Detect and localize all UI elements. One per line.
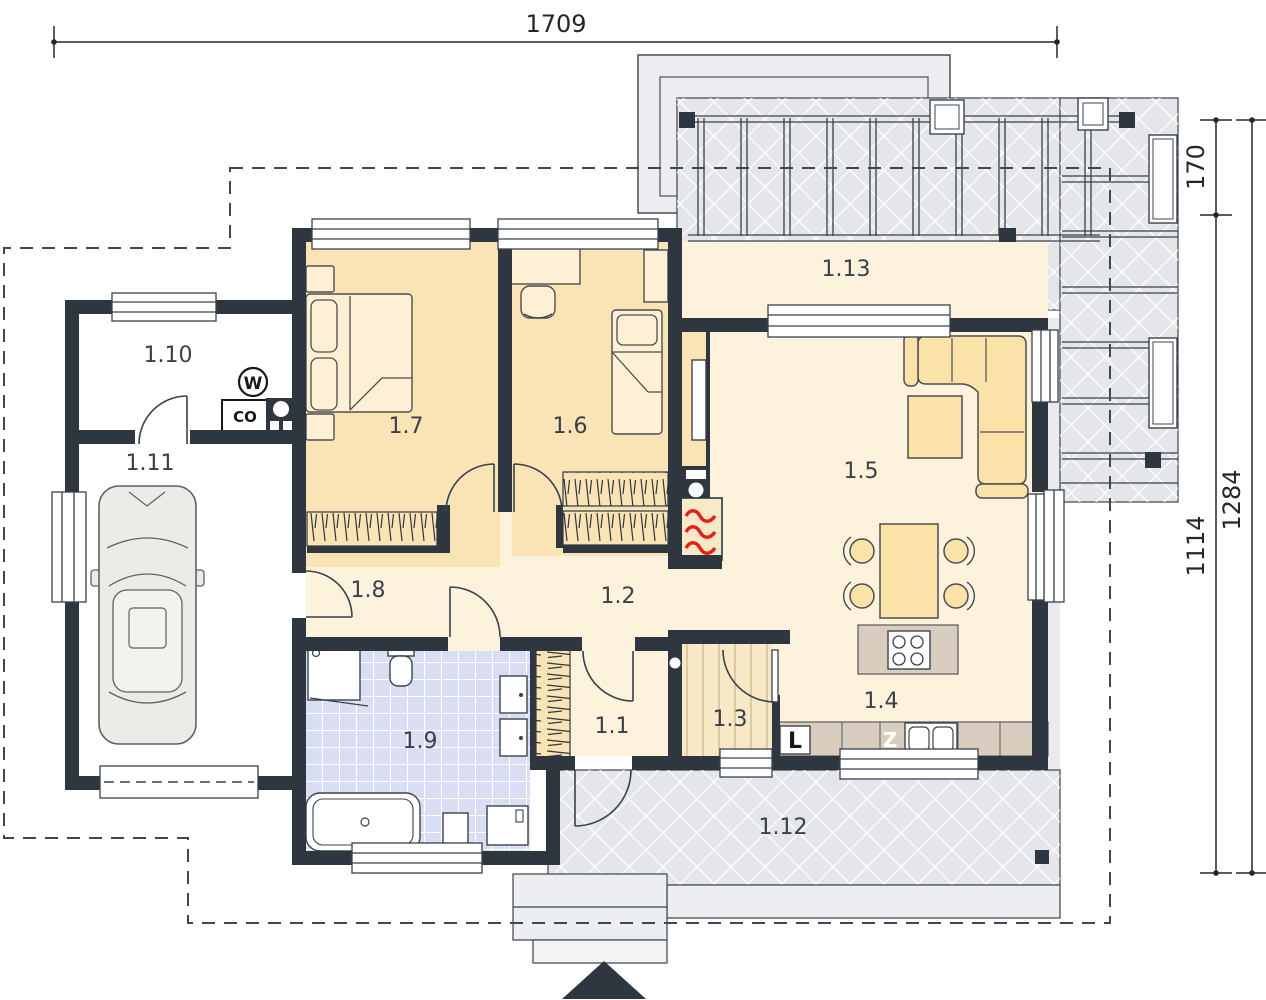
shower	[308, 645, 360, 700]
porch-post	[1035, 850, 1049, 864]
window-living-right	[1032, 330, 1058, 402]
sofa-armrest	[976, 484, 1028, 498]
pergola-post	[1145, 452, 1161, 468]
room-label-1-7: 1.7	[389, 414, 424, 439]
single-bed	[612, 310, 662, 434]
water-meter-label: W	[244, 374, 263, 394]
window-1-6	[498, 219, 658, 249]
room-label-1-2: 1.2	[601, 584, 636, 609]
pergola-post	[679, 112, 695, 128]
washbasin	[500, 676, 527, 713]
fridge-label: L	[788, 729, 802, 754]
room-label-1-6: 1.6	[553, 414, 588, 439]
window-1-10	[112, 293, 216, 321]
entrance-arrow	[562, 961, 646, 999]
laundry-bin	[443, 813, 468, 845]
floor-plan-drawing: W CO	[0, 0, 1266, 1000]
nightstand	[306, 266, 334, 292]
bathtub	[306, 793, 420, 851]
dim-1284: 1284	[1218, 469, 1246, 530]
dim-top: 1709	[51, 10, 1060, 58]
room-label-1-13: 1.13	[822, 257, 871, 282]
dim-top-value: 1709	[525, 10, 586, 38]
room-label-1-9: 1.9	[403, 729, 438, 754]
porch-1-12	[513, 770, 1060, 999]
garage-door	[100, 766, 258, 798]
sofa-armrest	[904, 334, 918, 386]
coffee-table	[908, 396, 962, 458]
window-1-7	[312, 219, 470, 249]
room-label-1-3: 1.3	[713, 707, 748, 732]
window-garage-left	[52, 492, 86, 602]
nightstand	[306, 414, 334, 440]
room-label-1-8: 1.8	[351, 578, 386, 603]
toilet	[390, 656, 412, 686]
car	[91, 486, 204, 744]
dim-right: 170 1114 1284	[1182, 117, 1266, 876]
washing-machine	[487, 806, 528, 845]
terrace-sliding-door	[1028, 490, 1064, 602]
washbasin	[500, 719, 527, 756]
dim-170: 170	[1182, 144, 1210, 190]
pergola-post	[1119, 112, 1135, 128]
room-label-1-12: 1.12	[759, 815, 808, 840]
dining-table	[880, 524, 938, 618]
room-label-1-10: 1.10	[144, 343, 193, 368]
room-label-1-1: 1.1	[595, 714, 630, 739]
entry-step-lower	[533, 940, 667, 963]
floor-plan-page: W CO	[0, 0, 1266, 1000]
desk	[510, 248, 580, 284]
dim-1114: 1114	[1182, 515, 1210, 576]
porch-step	[667, 885, 1060, 918]
window-living-top	[768, 305, 950, 337]
tall-cabinet	[692, 360, 706, 440]
sink-label: Z	[883, 728, 898, 752]
window-bath	[352, 843, 482, 873]
wall-vent	[670, 658, 681, 669]
room-label-1-5: 1.5	[844, 459, 879, 484]
room-label-1-4: 1.4	[864, 689, 899, 714]
desk-chair	[521, 286, 555, 318]
window-bottom-small	[720, 749, 772, 777]
window-kitchen	[840, 749, 978, 779]
room-label-1-11: 1.11	[126, 451, 175, 476]
boiler-label: CO	[233, 408, 257, 426]
double-bed	[306, 294, 412, 412]
shelf	[644, 250, 668, 302]
